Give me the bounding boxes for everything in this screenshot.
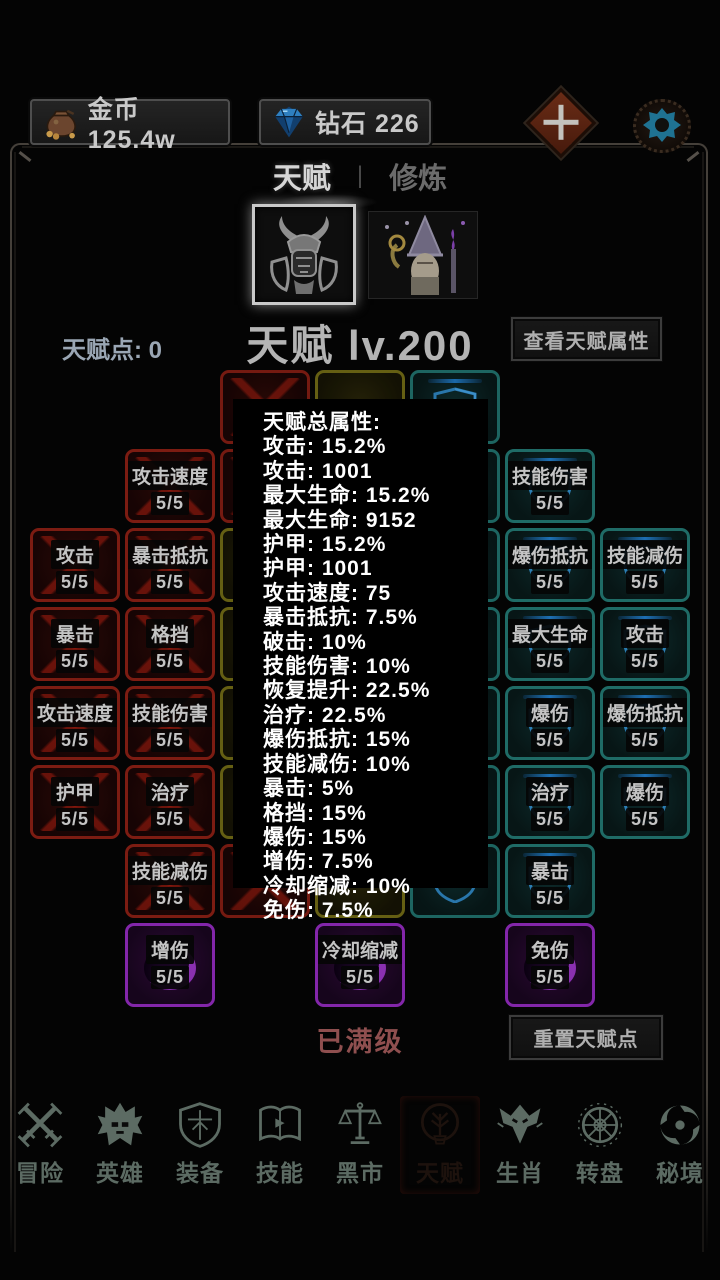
tile-level: 5/5 (341, 966, 379, 989)
nav-item-label: 黑市 (336, 1154, 384, 1188)
popup-stat-line: 爆伤: 15% (263, 826, 488, 850)
popup-stat-line: 暴击抵抗: 7.5% (263, 606, 488, 630)
zodiac-icon (492, 1096, 548, 1154)
nav-item-label: 转盘 (576, 1154, 624, 1188)
popup-stat-line: 最大生命: 9152 (263, 509, 488, 533)
tile-name: 爆伤 (621, 777, 669, 806)
popup-stat-line: 攻击: 1001 (263, 460, 488, 484)
popup-stat-line: 暴击: 5% (263, 777, 488, 801)
tile-level: 5/5 (56, 571, 94, 594)
tile-name: 冷却缩减 (317, 935, 403, 964)
tile-name: 暴击抵抗 (127, 540, 213, 569)
tile-level: 5/5 (531, 808, 569, 831)
nav-item-label: 技能 (256, 1154, 304, 1188)
tile-name: 技能伤害 (507, 461, 593, 490)
nav-item-label: 冒险 (16, 1154, 64, 1188)
popup-stat-line: 冷却缩减: 10% (263, 875, 488, 899)
talent-tile[interactable]: 技能伤害5/5 (125, 686, 215, 760)
tile-level: 5/5 (531, 571, 569, 594)
wheel-icon (572, 1096, 628, 1154)
popup-stat-line: 护甲: 15.2% (263, 533, 488, 557)
tile-level: 5/5 (56, 729, 94, 752)
talent-tile[interactable]: 暴击抵抗5/5 (125, 528, 215, 602)
tile-name: 技能减伤 (127, 856, 213, 885)
talent-tile[interactable]: 爆伤抵抗5/5 (600, 686, 690, 760)
talent-icon (412, 1096, 468, 1154)
talent-tile[interactable]: 最大生命5/5 (505, 607, 595, 681)
tile-level: 5/5 (626, 650, 664, 673)
tile-level: 5/5 (151, 729, 189, 752)
talent-tile[interactable]: 爆伤5/5 (505, 686, 595, 760)
talent-tile[interactable]: 格挡5/5 (125, 607, 215, 681)
nav-item-hero[interactable]: 英雄 (80, 1096, 160, 1194)
talent-tile[interactable]: 护甲5/5 (30, 765, 120, 839)
talent-tile[interactable]: 暴击5/5 (505, 844, 595, 918)
popup-stat-line: 天赋总属性: (263, 411, 488, 435)
talent-tile[interactable]: 增伤5/5 (125, 923, 215, 1007)
talent-tile[interactable]: 攻击速度5/5 (125, 449, 215, 523)
tile-level: 5/5 (151, 808, 189, 831)
tile-level: 5/5 (531, 887, 569, 910)
talent-tile[interactable]: 技能减伤5/5 (600, 528, 690, 602)
popup-stat-line: 增伤: 7.5% (263, 850, 488, 874)
tile-name: 攻击 (621, 619, 669, 648)
tile-name: 增伤 (146, 935, 194, 964)
tile-level: 5/5 (626, 808, 664, 831)
talent-tile[interactable]: 攻击5/5 (600, 607, 690, 681)
popup-stat-line: 爆伤抵抗: 15% (263, 728, 488, 752)
nav-item-talent[interactable]: 天赋 (400, 1096, 480, 1194)
popup-stat-line: 治疗: 22.5% (263, 704, 488, 728)
nav-item-label: 英雄 (96, 1154, 144, 1188)
nav-item-market[interactable]: 黑市 (320, 1096, 400, 1194)
tile-level: 5/5 (56, 808, 94, 831)
tile-name: 免伤 (526, 935, 574, 964)
tile-name: 治疗 (146, 777, 194, 806)
tile-level: 5/5 (151, 650, 189, 673)
tile-level: 5/5 (151, 887, 189, 910)
market-icon (332, 1096, 388, 1154)
talent-tile[interactable]: 爆伤5/5 (600, 765, 690, 839)
skill-icon (252, 1096, 308, 1154)
talent-tile[interactable]: 治疗5/5 (505, 765, 595, 839)
equipment-icon (172, 1096, 228, 1154)
talent-tile[interactable]: 技能伤害5/5 (505, 449, 595, 523)
tile-level: 5/5 (531, 966, 569, 989)
tile-level: 5/5 (56, 650, 94, 673)
tile-level: 5/5 (151, 966, 189, 989)
talent-tile[interactable]: 免伤5/5 (505, 923, 595, 1007)
tile-energy-bar (428, 379, 482, 383)
tile-level: 5/5 (151, 571, 189, 594)
nav-item-wheel[interactable]: 转盘 (560, 1096, 640, 1194)
nav-item-adventure[interactable]: 冒险 (0, 1096, 80, 1194)
talent-tile[interactable]: 攻击速度5/5 (30, 686, 120, 760)
tile-level: 5/5 (531, 650, 569, 673)
nav-item-label: 装备 (176, 1154, 224, 1188)
tile-level: 5/5 (626, 571, 664, 594)
tile-name: 爆伤抵抗 (602, 698, 688, 727)
tile-name: 技能伤害 (127, 698, 213, 727)
talent-tile[interactable]: 技能减伤5/5 (125, 844, 215, 918)
talent-tile[interactable]: 暴击5/5 (30, 607, 120, 681)
tile-level: 5/5 (531, 492, 569, 515)
tile-name: 攻击速度 (32, 698, 118, 727)
tile-level: 5/5 (626, 729, 664, 752)
tile-level: 5/5 (151, 492, 189, 515)
popup-stat-line: 护甲: 1001 (263, 557, 488, 581)
tile-name: 爆伤抵抗 (507, 540, 593, 569)
nav-item-zodiac[interactable]: 生肖 (480, 1096, 560, 1194)
talent-tile[interactable]: 爆伤抵抗5/5 (505, 528, 595, 602)
popup-stat-line: 技能伤害: 10% (263, 655, 488, 679)
talent-tile[interactable]: 冷却缩减5/5 (315, 923, 405, 1007)
nav-item-label: 生肖 (496, 1154, 544, 1188)
popup-stat-line: 攻击速度: 75 (263, 582, 488, 606)
nav-item-realm[interactable]: 秘境 (640, 1096, 720, 1194)
realm-icon (652, 1096, 708, 1154)
bottom-nav: 冒险英雄装备技能黑市天赋生肖转盘秘境 (0, 1096, 720, 1196)
talent-tile[interactable]: 治疗5/5 (125, 765, 215, 839)
tile-name: 暴击 (526, 856, 574, 885)
nav-item-label: 秘境 (656, 1154, 704, 1188)
popup-stat-line: 技能减伤: 10% (263, 753, 488, 777)
talent-summary-popup[interactable]: 天赋总属性:攻击: 15.2%攻击: 1001最大生命: 15.2%最大生命: … (233, 399, 488, 888)
tile-name: 护甲 (51, 777, 99, 806)
popup-stat-line: 破击: 10% (263, 631, 488, 655)
tile-name: 技能减伤 (602, 540, 688, 569)
popup-stat-line: 攻击: 15.2% (263, 435, 488, 459)
tile-name: 最大生命 (507, 619, 593, 648)
popup-stat-line: 免伤: 7.5% (263, 899, 488, 923)
nav-item-label: 天赋 (416, 1154, 464, 1188)
nav-item-skill[interactable]: 技能 (240, 1096, 320, 1194)
tile-level: 5/5 (531, 729, 569, 752)
tile-name: 治疗 (526, 777, 574, 806)
popup-stat-line: 格挡: 15% (263, 802, 488, 826)
hero-icon (92, 1096, 148, 1154)
popup-stat-line: 最大生命: 15.2% (263, 484, 488, 508)
talent-tile[interactable]: 攻击5/5 (30, 528, 120, 602)
adventure-icon (12, 1096, 68, 1154)
tile-name: 攻击速度 (127, 461, 213, 490)
tile-name: 格挡 (146, 619, 194, 648)
tile-name: 攻击 (51, 540, 99, 569)
tile-name: 爆伤 (526, 698, 574, 727)
popup-stat-line: 恢复提升: 22.5% (263, 679, 488, 703)
nav-item-equipment[interactable]: 装备 (160, 1096, 240, 1194)
tile-name: 暴击 (51, 619, 99, 648)
